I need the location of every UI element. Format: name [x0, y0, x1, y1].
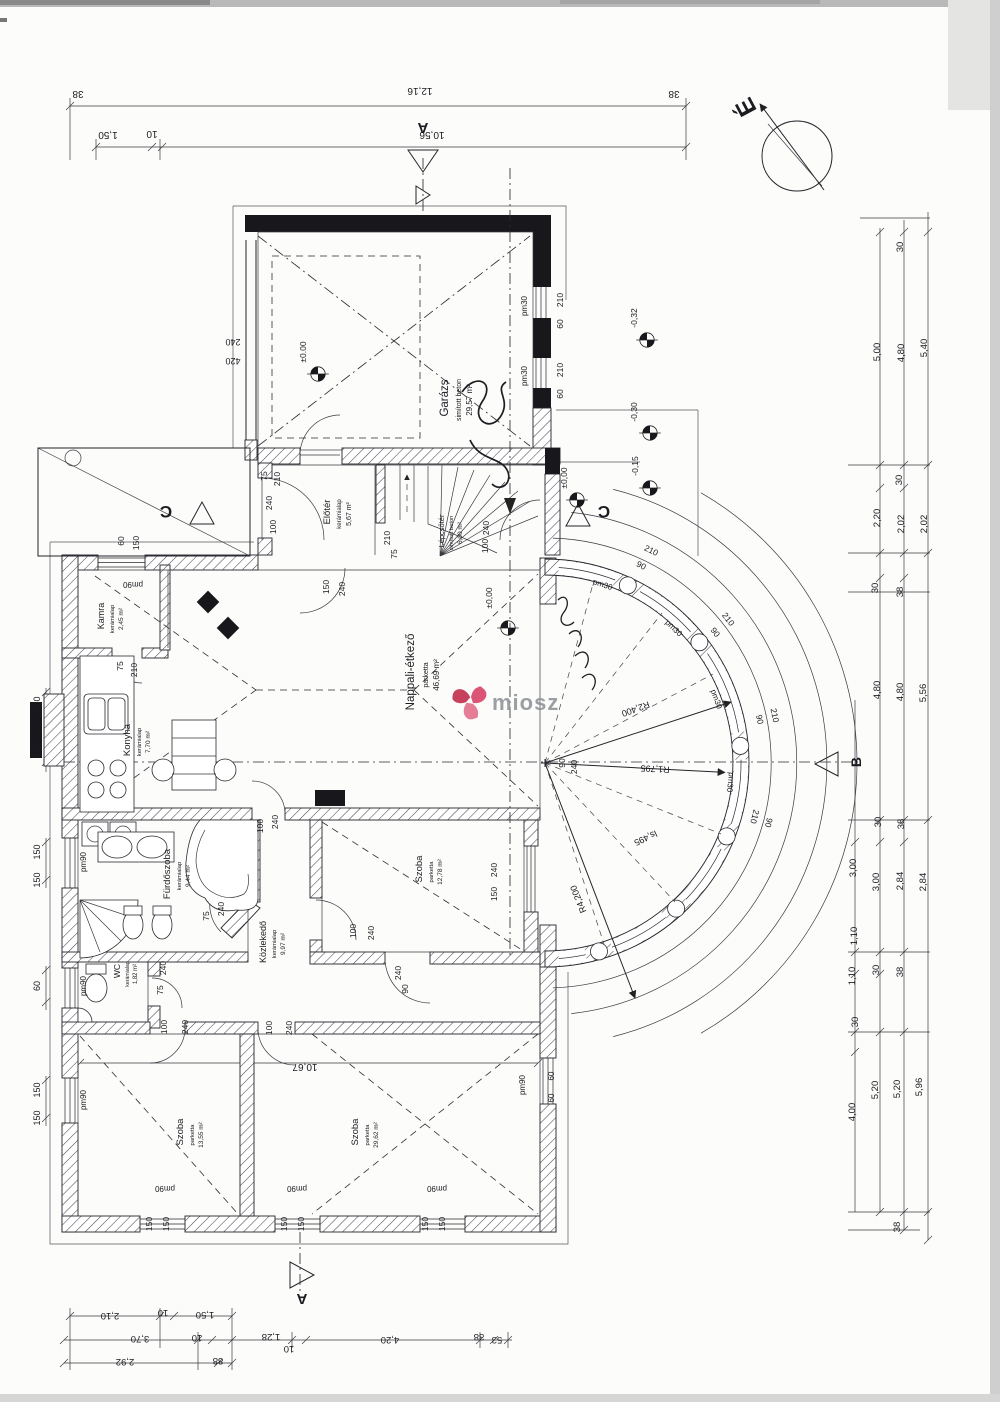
level-value: -0,30 — [629, 402, 639, 422]
midroom-left-wall — [310, 820, 322, 898]
dim-value: 130 — [32, 742, 42, 757]
radius-value: R4,200 — [568, 884, 588, 915]
section-b-label: B — [848, 757, 864, 767]
radius-value: ls,495 — [633, 828, 659, 847]
dim-value: 12,16 — [407, 85, 432, 96]
dim-value: 150 — [32, 844, 42, 859]
door-size: 150 — [321, 580, 331, 594]
dim-value: 38 — [892, 1222, 903, 1233]
chimney-block — [315, 790, 345, 806]
staircase — [400, 465, 538, 556]
window-type: pm90 — [286, 1184, 307, 1193]
room-finish: kerámialap — [110, 605, 116, 633]
south-wall — [62, 1216, 140, 1232]
midroom-south-wall — [310, 952, 385, 964]
entry-top-wall — [258, 448, 300, 464]
door-size: 75 — [201, 911, 211, 921]
dim-value: 150 — [32, 696, 42, 711]
garage-right-wall — [533, 318, 551, 358]
room-area: 46,69 m² — [432, 659, 441, 691]
window-size: 60 — [555, 389, 565, 399]
terrace-diagonal — [38, 448, 250, 556]
level-value: ±0.00 — [298, 341, 308, 362]
dim-value: 10,56 — [419, 129, 444, 140]
midroom-right-wall — [524, 820, 538, 846]
garage-right-wall — [533, 215, 551, 287]
dim-labels-bottom: 2,10 10 1,50 3,70 10 2,92 88 1,28 10 4,2… — [101, 1307, 503, 1367]
door-size: 75 — [155, 985, 165, 995]
wc-basin — [78, 1008, 92, 1022]
dim-value: 5,40 — [919, 339, 930, 358]
level-marker-garage — [307, 367, 329, 381]
dim-value: 53 — [492, 1334, 503, 1345]
window-size: 210 — [555, 293, 565, 307]
kamra-right-wall — [160, 565, 170, 650]
windows — [65, 287, 553, 1229]
dim-value: 10 — [146, 128, 158, 139]
room-finish: parketta — [423, 662, 430, 687]
dim-value: 1,10 — [847, 967, 858, 986]
scan-edge-bottom — [0, 1394, 1000, 1402]
window-type: pm90 — [154, 1184, 175, 1193]
midroom-right-wall — [524, 912, 538, 952]
watermark-text: miosz — [492, 690, 559, 715]
door-size: 90 — [400, 984, 410, 994]
door-size: 100 — [264, 1021, 274, 1035]
window-type: pm90 — [518, 1074, 527, 1095]
room-name: Fürdőszoba — [162, 848, 173, 899]
scan-tick-left — [0, 18, 7, 22]
room-area: 13,55 m² — [198, 1121, 205, 1147]
door-size: 240 — [284, 1021, 294, 1035]
garage-roof-outline — [272, 256, 420, 438]
room-finish: parketta — [365, 1124, 371, 1146]
west-windows — [65, 838, 75, 1123]
window-size: 150 — [437, 1217, 447, 1231]
room-finish: kerámialap — [272, 930, 278, 958]
garage-right-wall — [533, 388, 551, 408]
room-area: 29,57 m² — [465, 384, 474, 416]
dim-value: 10 — [158, 1307, 169, 1318]
dim-value: 3,00 — [871, 873, 882, 892]
window-type: pm30 — [520, 295, 529, 316]
midroom-left-wall — [310, 940, 322, 952]
dim-value: 4,80 — [896, 344, 907, 363]
room-area: 29,62 m² — [373, 1121, 380, 1147]
dim-value: 5,56 — [918, 684, 929, 703]
window-type: pm90 — [79, 851, 88, 872]
level-marker-015 — [639, 481, 661, 495]
door-size: 240 — [216, 902, 226, 916]
window-size: 150 — [279, 1217, 289, 1231]
room-name: WC — [112, 964, 122, 978]
window-type: pm30 — [725, 772, 736, 793]
compass-north-label: É — [729, 93, 762, 121]
window-size: 90 — [763, 817, 775, 829]
dim-value: 1,28 — [262, 1331, 281, 1342]
kitchen-fixtures — [80, 656, 236, 812]
door-size: 75 — [389, 549, 399, 559]
door-size: 75 — [115, 661, 125, 671]
compass-rose — [760, 104, 832, 191]
hall-south-wall — [62, 1022, 150, 1034]
section-a-marker-bottom — [290, 1262, 314, 1288]
level-marker-entry — [566, 493, 588, 507]
dim-value: 1,50 — [196, 1309, 215, 1320]
level-marker-032 — [636, 333, 658, 347]
dim-value: 4,80 — [872, 681, 883, 700]
door-size: 240 — [264, 496, 274, 510]
terrace-drain — [65, 450, 81, 466]
dim-value: 4,00 — [847, 1103, 858, 1122]
dim-value: 5,20 — [870, 1081, 881, 1100]
room-finish: parketta — [190, 1124, 196, 1146]
room-finish: simított beton — [456, 379, 463, 421]
dim-value: 2,10 — [101, 1310, 120, 1321]
bedroom-divider-wall — [240, 1034, 254, 1216]
dim-value: 30 — [871, 965, 882, 976]
dim-value: 30 — [895, 242, 906, 253]
hall-door — [252, 781, 285, 814]
room-name: Előtér — [322, 500, 333, 525]
room-area: 12,78 m² — [437, 858, 444, 884]
scan-smudge-topcenter — [560, 0, 820, 4]
level-value: ±0,00 — [559, 467, 569, 488]
dim-value: 150 — [32, 872, 42, 887]
window-size: 90 — [709, 625, 723, 639]
dim-line-top — [70, 98, 686, 160]
dim-value: 5,96 — [914, 1078, 925, 1097]
dim-value: 2,20 — [872, 509, 883, 528]
room-area: 1,82 m² — [133, 964, 139, 984]
garage-roof-lines — [258, 236, 530, 446]
midroom-south-wall — [430, 952, 540, 964]
room-name: Lépcsőtér — [437, 514, 446, 547]
garage-door-nib — [245, 440, 257, 460]
dim-value: 2,02 — [896, 515, 907, 534]
dim-value: 38 — [474, 1331, 485, 1342]
window-size: 150 — [144, 1217, 154, 1231]
door-size: 100 — [480, 539, 490, 553]
mid-wall — [285, 808, 540, 820]
window-size: 240 — [489, 863, 499, 877]
window-type: pm90 — [122, 580, 143, 589]
dim-value: 5,00 — [872, 343, 883, 362]
dim-labels-right: 30 5,00 4,80 5,40 30 2,20 2,02 2,02 30 3… — [847, 242, 930, 1233]
level-value: -0,15 — [630, 456, 640, 476]
midroom-south-door — [385, 958, 430, 1003]
door-size: 210 — [382, 531, 392, 545]
window-size: 210 — [555, 363, 565, 377]
east-wall — [540, 1104, 556, 1232]
dim-value: 38 — [896, 819, 907, 830]
door-size: 210 — [272, 472, 282, 486]
room-area: 5,67 m² — [346, 501, 353, 525]
room-name: Nappali-étkező — [405, 634, 417, 711]
section-c-marker-left — [190, 502, 214, 524]
dim-value: 150 — [32, 1110, 42, 1125]
garage-entry-door — [300, 415, 340, 455]
room-area: 9,97 m² — [280, 932, 287, 955]
garage-top-wall — [245, 215, 551, 232]
room-name: Garázs — [439, 379, 451, 416]
dim-value: 10 — [284, 1343, 295, 1354]
dim-value: 10 — [192, 1332, 203, 1343]
dim-value: 5,20 — [892, 1080, 903, 1099]
dim-value: 30 — [894, 475, 905, 486]
window-type: pm90 — [79, 975, 88, 996]
dim-value: 38 — [895, 967, 906, 978]
room-area: 6,00 m² — [457, 521, 464, 544]
room-name: Kamra — [96, 603, 106, 630]
dim-value: 38 — [668, 88, 680, 99]
entry-top-wall — [342, 448, 560, 464]
door-size: 240 — [393, 966, 403, 980]
room-finish: kerámialap — [125, 961, 131, 986]
room-finish: kerámialap — [137, 728, 143, 756]
room-area: 2,45 m² — [118, 607, 125, 630]
flue-wall — [44, 694, 64, 766]
door-size: 100 — [348, 924, 358, 938]
window-type: pm90 — [426, 1184, 447, 1193]
dim-value: 3,70 — [131, 1333, 150, 1344]
dim-value: 2,84 — [918, 873, 929, 892]
door-size: 240 — [481, 521, 491, 535]
scan-edge-right — [990, 0, 1000, 1402]
door-size: 210 — [129, 663, 139, 677]
dim-value: 60 — [32, 981, 42, 991]
radius-value: R2,400 — [620, 699, 651, 718]
door-size: 100 — [255, 819, 265, 833]
dim-value: 2,02 — [919, 515, 930, 534]
room-name: Szoba — [350, 1118, 361, 1146]
south-wall — [320, 1216, 420, 1232]
window-size: 210 — [643, 543, 660, 558]
section-a-label: A — [296, 1290, 307, 1307]
window-size: 210 — [720, 610, 737, 628]
window-size: 150 — [420, 1217, 430, 1231]
fireplace — [197, 591, 240, 640]
room-finish: kerámialap — [337, 499, 343, 529]
room-area: 9,44 m² — [185, 864, 192, 887]
room-name: Szoba — [175, 1118, 186, 1146]
bay-window-openings — [558, 561, 748, 966]
stair-direction-arrow — [504, 498, 516, 514]
window-size: 150 — [131, 536, 141, 550]
kamra-window — [98, 558, 145, 567]
labels: A A B C C É Garázs simított beton 29,57 … — [32, 85, 930, 1367]
south-wall — [185, 1216, 275, 1232]
terrace — [38, 448, 250, 556]
dim-value: 150 — [32, 1082, 42, 1097]
garage-door-jamb — [246, 240, 256, 448]
entry-left-wall — [258, 538, 272, 555]
dim-value: 30 — [870, 583, 881, 594]
section-c-label: C — [160, 502, 172, 521]
radius-value: R1,795 — [640, 763, 670, 775]
bath-wc-bidet — [123, 906, 172, 939]
roof-eaves-outline — [50, 206, 698, 1244]
level-marker-living — [497, 621, 519, 635]
door-size: 240 — [225, 337, 240, 347]
level-value: -0,32 — [629, 308, 639, 328]
room-name: Konyha — [122, 723, 133, 756]
door-size: 240 — [270, 815, 280, 829]
window-size: 150 — [161, 1217, 171, 1231]
window-type: pm30 — [520, 365, 529, 386]
stair-corner-pier — [545, 448, 560, 474]
dim-value: 4,20 — [381, 1334, 400, 1345]
dim-value: 1,50 — [98, 129, 118, 140]
stair-door — [500, 500, 540, 540]
level-marker-030 — [639, 426, 661, 440]
entry-stair-divider — [376, 465, 385, 523]
window-size: 210 — [769, 707, 782, 723]
dim-value: 38 — [72, 88, 84, 99]
radius-labels: R2,400 R1,795 R4,200 ls,495 — [568, 699, 670, 914]
door-size: 240 — [337, 582, 347, 596]
dim-value: 2,84 — [895, 872, 906, 891]
dim-value: 4,80 — [895, 683, 906, 702]
dim-value: 10,67 — [292, 1061, 317, 1072]
dim-value: 1,10 — [849, 927, 860, 946]
room-finish: parketta — [429, 861, 435, 883]
door-size: 420 — [225, 356, 240, 366]
round-bay — [541, 489, 857, 1036]
door-size: 240 — [366, 926, 376, 940]
room-name: Szoba — [414, 855, 425, 883]
scan-corner-topright — [948, 0, 990, 110]
bay-glazing — [559, 568, 741, 959]
garage-inner-outline — [258, 232, 533, 450]
door-size: 240 — [158, 961, 168, 975]
dim-value: 30 — [873, 817, 884, 828]
scan-smudge-topleft — [0, 0, 210, 5]
level-value: ±0,00 — [484, 587, 494, 608]
dim-labels-top: 38 12,16 38 1,50 10 10,56 — [72, 85, 680, 140]
window-size: 60 — [547, 1093, 556, 1102]
window-size: 90 — [754, 714, 766, 726]
door-size: 90 — [557, 758, 567, 768]
dim-value: 3,00 — [848, 859, 859, 878]
window-size: 60 — [555, 319, 565, 329]
dim-value: 38 — [895, 587, 906, 598]
midroom-window — [527, 846, 535, 912]
door-size: 240 — [569, 760, 579, 774]
door-size: 75 — [259, 471, 269, 481]
floorplan-drawing: A A B C C É Garázs simított beton 29,57 … — [0, 0, 1000, 1402]
room-finish: kerámialap — [177, 862, 183, 890]
window-size: 210 — [748, 809, 761, 825]
dim-ticks-top — [66, 102, 690, 151]
hall-south-wall — [295, 1022, 540, 1034]
west-wall — [62, 1008, 78, 1078]
scanned-floorplan-sheet: A A B C C É Garázs simított beton 29,57 … — [0, 0, 1000, 1402]
door-size: 100 — [268, 520, 278, 534]
dim-value: 2,92 — [116, 1356, 135, 1367]
window-size: 90 — [635, 559, 648, 572]
watermark-logo-icon — [450, 686, 487, 722]
stair-treads — [400, 465, 538, 556]
window-size: 150 — [489, 887, 499, 901]
window-size: 60 — [547, 1071, 556, 1080]
hall-south-wall — [185, 1022, 258, 1034]
door-size: 100 — [159, 1020, 169, 1034]
watermark: miosz — [450, 686, 560, 722]
window-type: pm90 — [79, 1089, 88, 1110]
window-size: 150 — [296, 1217, 306, 1231]
room-name: Közlekedő — [258, 921, 268, 963]
east-wall — [540, 965, 556, 1058]
dim-value: 30 — [850, 1017, 861, 1028]
window-size: 60 — [116, 536, 126, 546]
room-finish: simított beton — [449, 516, 455, 551]
section-c-label: C — [598, 502, 610, 521]
stair-right-wall — [545, 474, 560, 555]
dim-value: 88 — [213, 1355, 224, 1366]
room-area: 7,70 m² — [145, 730, 152, 753]
door-size: 240 — [180, 1020, 190, 1034]
